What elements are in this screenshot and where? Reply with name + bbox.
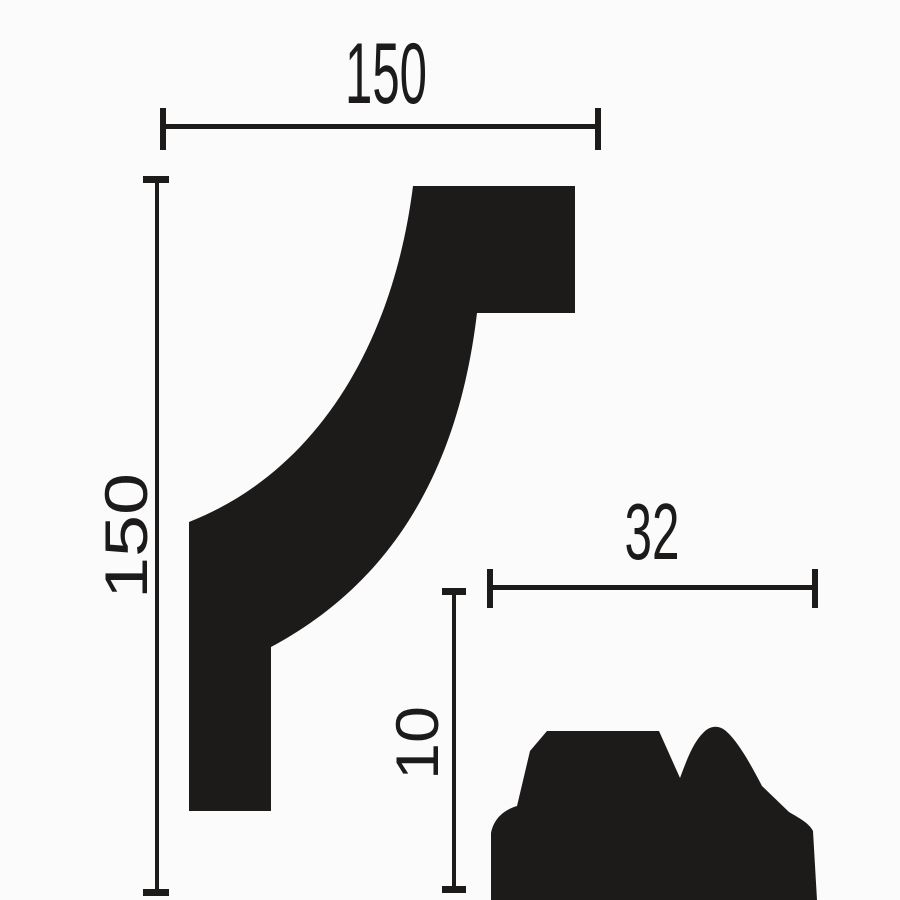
dim-height-10-line <box>452 591 456 889</box>
profile-dimension-diagram: 150 150 32 10 <box>0 0 900 900</box>
dim-width-150-label: 150 <box>345 26 427 122</box>
dim-width-150-line <box>163 124 598 129</box>
dim-height-150-label: 150 <box>93 473 160 599</box>
dim-height-10-cap-bottom <box>442 886 466 893</box>
drawing-canvas: 150 150 32 10 <box>0 0 900 900</box>
large-cove-profile-shape <box>189 186 575 811</box>
ink-layer: 150 150 32 10 <box>93 26 818 900</box>
dim-width-150-cap-left <box>160 108 166 150</box>
small-moulding-profile-shape <box>491 727 817 900</box>
dim-height-150-cap-top <box>143 176 169 183</box>
dim-height-10-cap-top <box>442 588 466 595</box>
dim-height-150-cap-bottom <box>143 889 169 896</box>
dim-width-32-cap-left <box>487 569 493 608</box>
dim-width-32-label: 32 <box>625 487 680 576</box>
dim-width-32-cap-right <box>812 569 818 608</box>
dim-width-32-line <box>490 585 815 590</box>
dim-width-150-cap-right <box>595 108 601 150</box>
dim-height-10-label: 10 <box>384 706 451 780</box>
